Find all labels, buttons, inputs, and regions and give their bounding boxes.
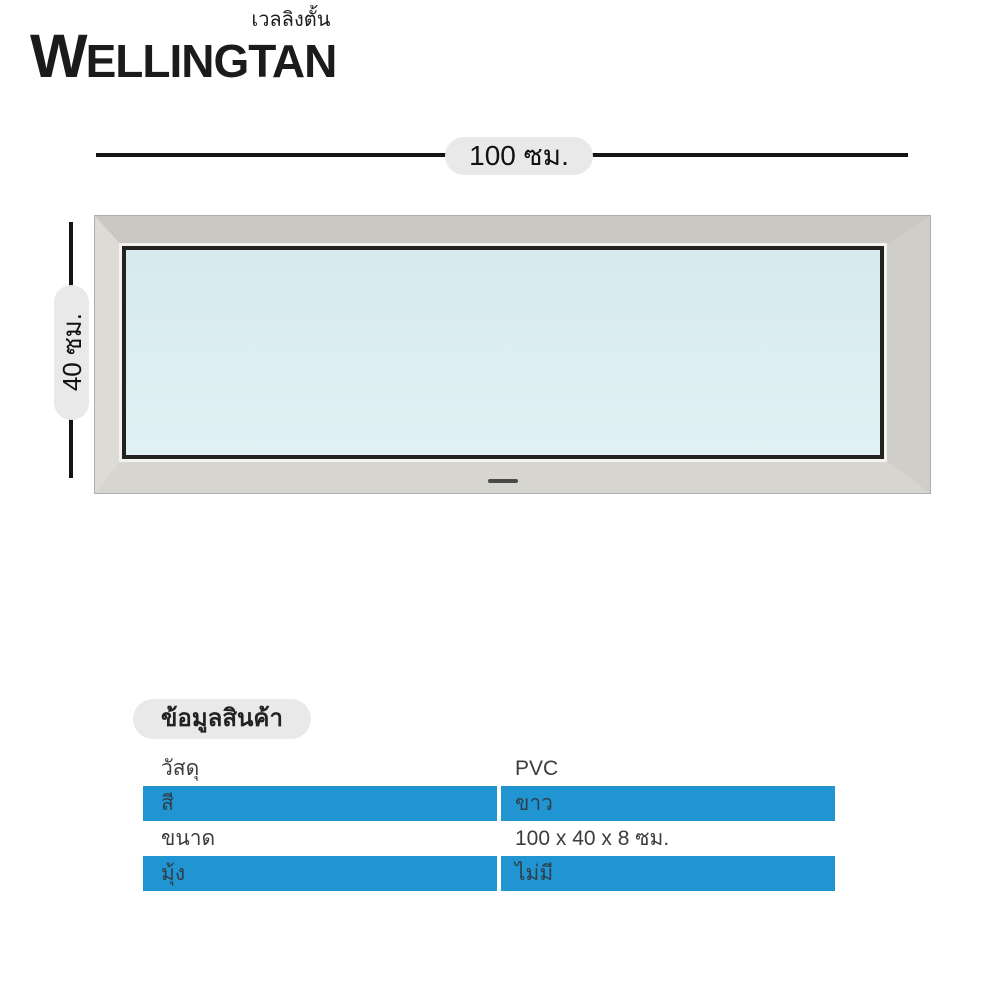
brand-name-rest: ELLINGTAN <box>86 35 337 87</box>
row-label: วัสดุ <box>143 751 497 786</box>
brand-name: WELLINGTAN <box>30 32 336 85</box>
row-label: สี <box>143 786 497 821</box>
row-value: 100 x 40 x 8 ซม. <box>501 821 835 856</box>
table-row-screen: มุ้ง ไม่มี <box>143 856 835 891</box>
brand-logo: เวลลิงตั้น WELLINGTAN <box>30 8 336 85</box>
row-label: ขนาด <box>143 821 497 856</box>
row-value: ขาว <box>501 786 835 821</box>
product-info-table: วัสดุ PVC สี ขาว ขนาด 100 x 40 x 8 ซม. ม… <box>143 751 835 891</box>
row-value: PVC <box>501 751 835 786</box>
table-row-material: วัสดุ PVC <box>143 751 835 786</box>
width-dimension-label: 100 ซม. <box>445 137 593 175</box>
height-dimension-text: 40 ซม. <box>51 313 92 391</box>
window-handle <box>488 479 518 483</box>
row-label: มุ้ง <box>143 856 497 891</box>
window-glass <box>122 246 884 459</box>
brand-name-initial: W <box>30 22 86 90</box>
row-value: ไม่มี <box>501 856 835 891</box>
table-row-size: ขนาด 100 x 40 x 8 ซม. <box>143 821 835 856</box>
height-dimension-label: 40 ซม. <box>54 285 89 420</box>
table-row-color: สี ขาว <box>143 786 835 821</box>
product-info-title: ข้อมูลสินค้า <box>133 699 311 739</box>
window-illustration <box>95 216 930 493</box>
